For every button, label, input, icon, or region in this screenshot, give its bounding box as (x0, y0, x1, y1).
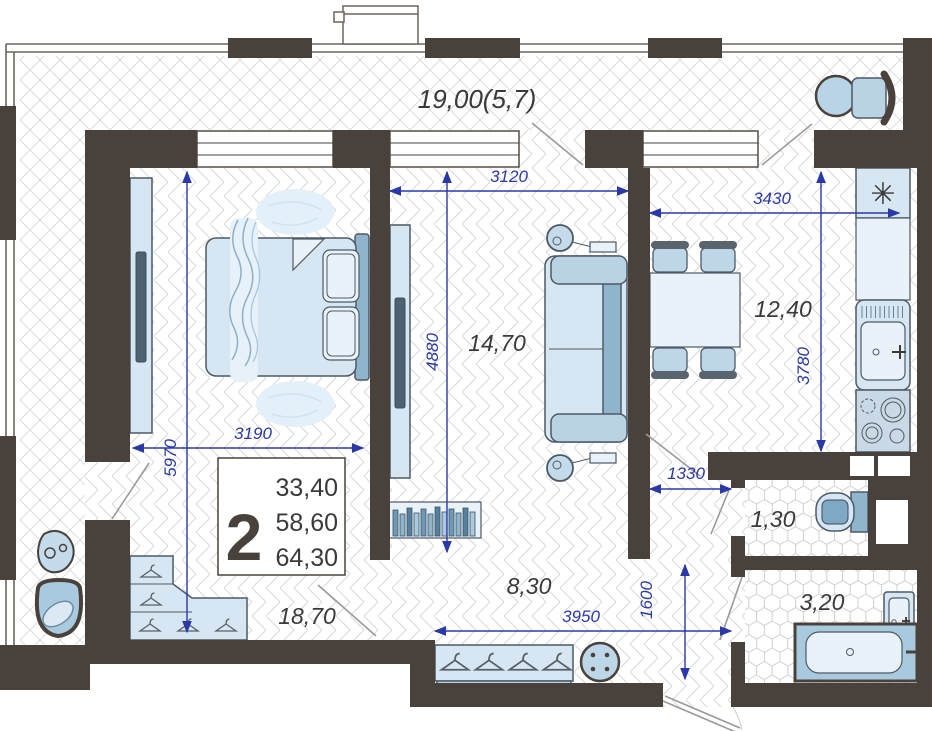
dining-chair (651, 348, 689, 379)
duct-inset (878, 456, 910, 476)
roof-projection-tab (334, 12, 344, 22)
balcony-lintel (648, 38, 722, 58)
toilet (816, 492, 868, 532)
kitchen-area-label: 12,40 (754, 296, 812, 322)
pouf-dot (591, 653, 596, 658)
wall-corner-topright (903, 38, 932, 130)
pillow (323, 307, 359, 360)
hall-furniture (435, 643, 619, 686)
bathtub (795, 624, 918, 681)
svg-text:3430: 3430 (753, 189, 791, 208)
legend-box: 2 33,40 58,60 64,30 (218, 458, 345, 575)
duct-inset (850, 456, 874, 476)
wc-area-label: 1,30 (751, 506, 796, 532)
dining-chair (699, 348, 737, 379)
hall-area-label: 8,30 (507, 573, 552, 599)
bathtub-basin (806, 632, 902, 673)
dining-chair (699, 241, 737, 272)
legend-room-count: 2 (226, 500, 263, 574)
sofa-armrest (551, 414, 627, 442)
wall-right (917, 130, 932, 707)
kitchen-window (643, 131, 758, 167)
svg-text:4880: 4880 (423, 333, 442, 371)
pouf-dot (605, 653, 610, 658)
balcony-lintel (425, 38, 520, 58)
toilet-seat (822, 500, 848, 524)
wall-bath-top (731, 556, 932, 570)
chair-seat (852, 78, 886, 118)
balcony-area-label: 19,00(5,7) (418, 84, 537, 114)
balcony-armchair (37, 580, 81, 636)
balcony-side-table (38, 531, 74, 572)
double-bed (206, 218, 369, 382)
wall-partition-bedroom (370, 168, 390, 560)
wall-partition-living (628, 168, 650, 559)
pouf-dot (591, 667, 596, 672)
roof-projection (343, 6, 418, 44)
wall-bath-left (731, 642, 745, 707)
balcony-table (816, 76, 856, 116)
stove (856, 390, 910, 452)
floor-plan-svg: ✳ (0, 0, 932, 731)
lamp-shade (590, 453, 616, 463)
fridge-snowflake-icon: ✳ (870, 177, 895, 212)
wall-balcony-bottom (0, 645, 90, 690)
wall-hall-bottom (420, 683, 663, 707)
wall-bedroom-left (85, 130, 130, 462)
bedroom-tv-stand (130, 178, 152, 433)
exterior-cover (85, 664, 420, 731)
bedroom-area-label: 18,70 (278, 603, 336, 629)
wall-segment (333, 130, 390, 168)
svg-text:1600: 1600 (637, 581, 656, 619)
svg-text:3190: 3190 (234, 424, 272, 443)
floor-plan: ✳ (0, 0, 932, 731)
exterior-cover (0, 690, 92, 731)
bookshelf (388, 502, 481, 538)
living-area-label: 14,70 (468, 330, 526, 356)
svg-text:3950: 3950 (562, 607, 600, 626)
legend-usable-area: 58,60 (275, 509, 338, 537)
wall-wc-left (731, 480, 745, 488)
svg-text:3780: 3780 (794, 347, 813, 385)
wall-bedroom-bottom (85, 640, 435, 664)
dining-table (650, 273, 740, 347)
kitchen-counter (856, 218, 910, 300)
sofa-backrest (603, 264, 621, 438)
balcony-lintel (228, 38, 312, 58)
sofa-armrest (551, 256, 627, 284)
tv-icon (395, 298, 405, 408)
wall-bedroom-left (85, 520, 130, 643)
kitchen-sink (856, 300, 910, 390)
legend-living-area: 33,40 (275, 474, 338, 502)
pillow (323, 250, 359, 302)
duct-inset (876, 500, 908, 544)
wall-hall-bottom (733, 683, 932, 707)
wall-bath-left (731, 570, 745, 577)
dining-chair (651, 241, 689, 272)
balcony-chair (852, 74, 892, 122)
balcony-pillar (0, 436, 16, 580)
coat-rack (435, 645, 573, 686)
table-top (38, 531, 74, 572)
living-window (390, 131, 519, 167)
rug (256, 381, 334, 427)
svg-text:1330: 1330 (667, 464, 705, 483)
bedroom-window (197, 131, 333, 167)
tv-icon (136, 252, 146, 362)
balcony-pillar (0, 106, 16, 240)
wc-furniture (816, 492, 868, 532)
living-tv-stand (390, 225, 410, 478)
svg-text:3120: 3120 (490, 167, 528, 186)
pouf (581, 643, 619, 681)
rug (256, 189, 334, 235)
sofa (545, 256, 627, 442)
windows (197, 131, 758, 167)
svg-text:5970: 5970 (161, 439, 180, 477)
exterior-cover (420, 707, 932, 731)
fridge: ✳ (856, 168, 910, 218)
wall-segment (585, 130, 643, 168)
legend-total-area: 64,30 (275, 544, 338, 572)
wall-segment (814, 130, 932, 168)
pouf-seat (581, 643, 619, 681)
stove-body (856, 390, 910, 452)
lamp-shade (590, 242, 616, 252)
bath-area-label: 3,20 (800, 589, 845, 615)
pouf-dot (605, 667, 610, 672)
